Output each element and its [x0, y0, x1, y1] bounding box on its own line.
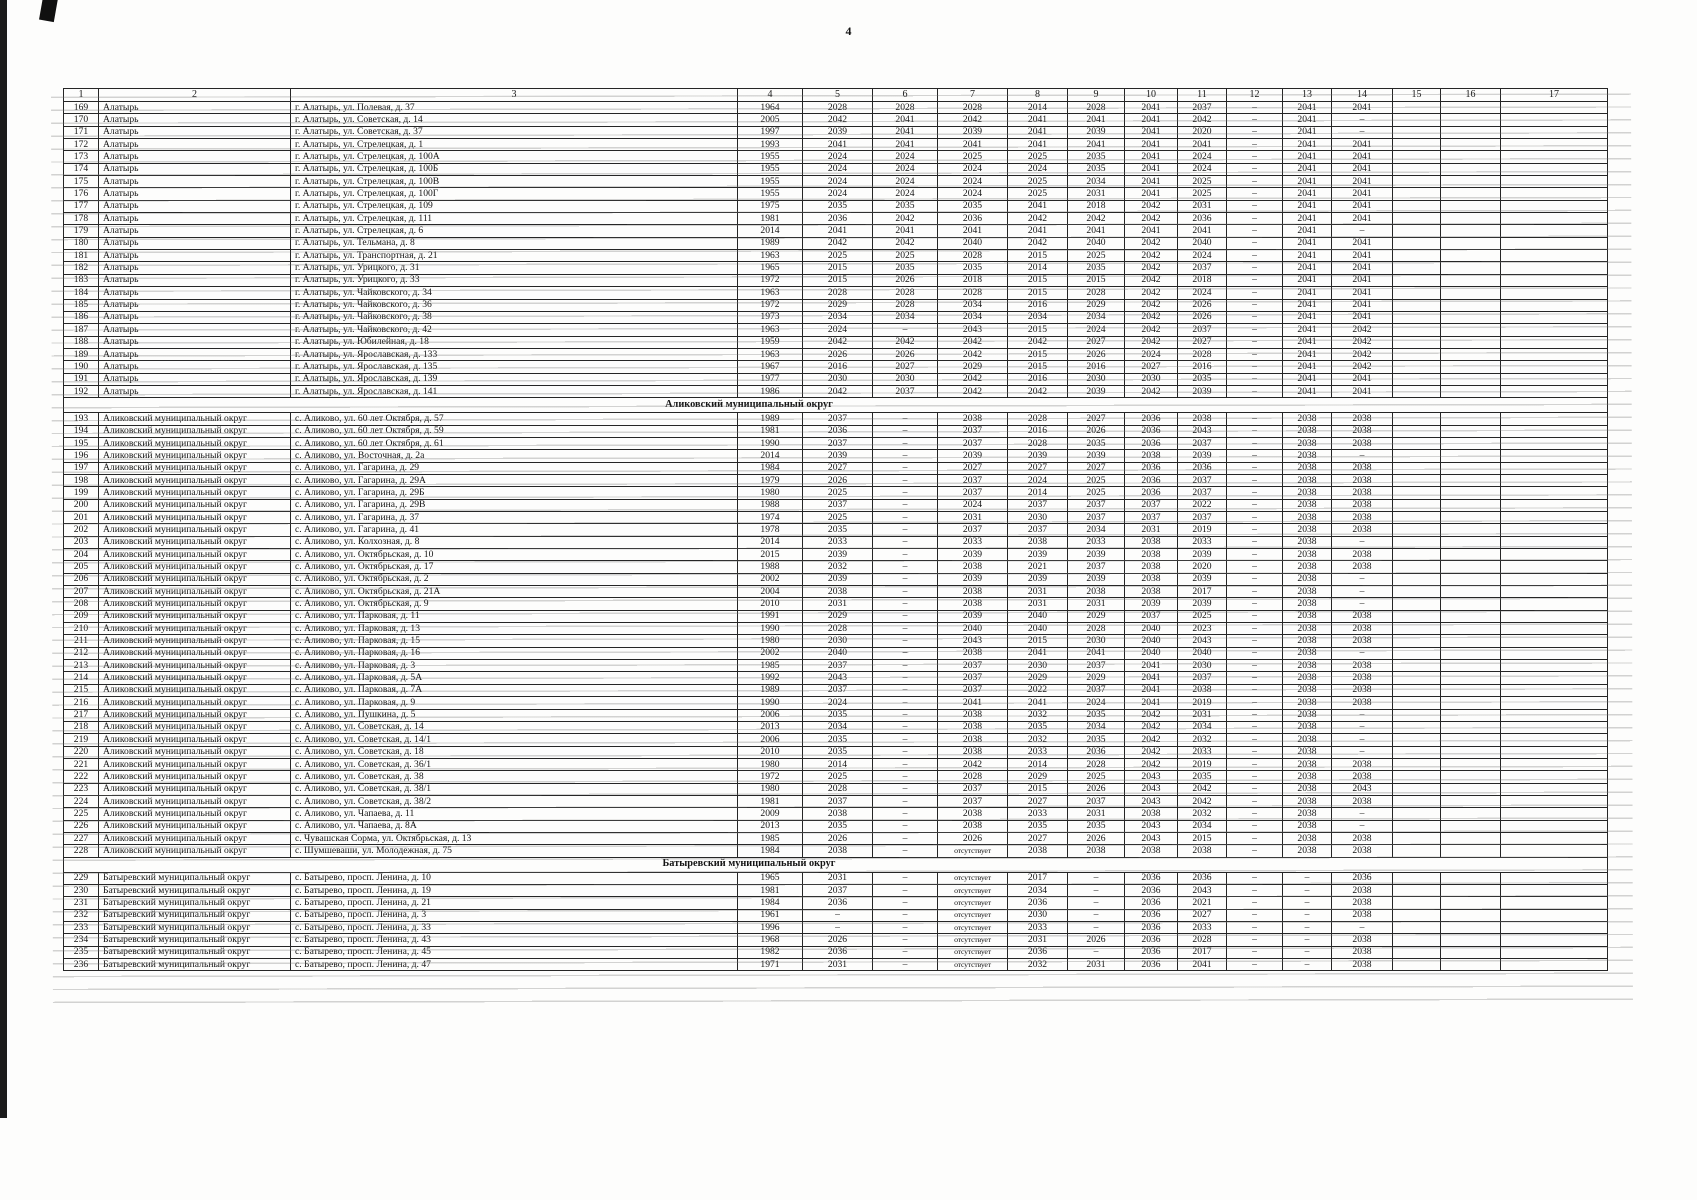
- table-row: 216Аликовский муниципальный округс. Алик…: [64, 697, 1608, 709]
- empty-cell: [1501, 348, 1608, 360]
- empty-cell: [1501, 126, 1608, 138]
- empty-cell: [1441, 872, 1501, 884]
- year-cell: 2027: [1008, 462, 1068, 474]
- empty-cell: [1393, 808, 1441, 820]
- municipality-cell: Алатырь: [99, 250, 291, 262]
- address-cell: г. Алатырь, ул. Ярославская, д. 133: [291, 348, 738, 360]
- table-row: 213Аликовский муниципальный округс. Алик…: [64, 660, 1608, 672]
- empty-cell: [1501, 139, 1608, 151]
- year-cell: 2038: [938, 586, 1008, 598]
- year-cell: 1986: [738, 385, 803, 397]
- year-cell: 2024: [873, 176, 938, 188]
- year-cell: 2042: [1332, 336, 1393, 348]
- year-cell: 2026: [1068, 348, 1125, 360]
- table-row: 224Аликовский муниципальный округс. Алик…: [64, 795, 1608, 807]
- year-cell: –: [1227, 437, 1283, 449]
- year-cell: 2041: [1332, 250, 1393, 262]
- municipality-cell: Аликовский муниципальный округ: [99, 610, 291, 622]
- year-cell: 1972: [738, 299, 803, 311]
- row-number-cell: 182: [64, 262, 99, 274]
- address-cell: с. Аликово, ул. Парковая, д. 13: [291, 623, 738, 635]
- year-cell: 2036: [938, 213, 1008, 225]
- year-cell: 2025: [1068, 250, 1125, 262]
- year-cell: 1990: [738, 697, 803, 709]
- municipality-cell: Аликовский муниципальный округ: [99, 721, 291, 733]
- address-cell: с. Аликово, ул. Гагарина, д. 29А: [291, 474, 738, 486]
- year-cell: 2013: [738, 820, 803, 832]
- empty-cell: [1441, 561, 1501, 573]
- table-row: 172Алатырьг. Алатырь, ул. Стрелецкая, д.…: [64, 139, 1608, 151]
- row-number-cell: 174: [64, 163, 99, 175]
- year-cell: 2032: [1178, 808, 1227, 820]
- year-cell: 2019: [1178, 758, 1227, 770]
- empty-cell: [1441, 139, 1501, 151]
- year-cell: 2038: [1332, 959, 1393, 971]
- year-cell: –: [873, 845, 938, 857]
- empty-cell: [1393, 524, 1441, 536]
- page-number: 4: [0, 24, 1697, 39]
- empty-cell: [1441, 610, 1501, 622]
- year-cell: 2027: [1008, 832, 1068, 844]
- year-cell: 2024: [938, 188, 1008, 200]
- year-cell: 2038: [1332, 474, 1393, 486]
- year-cell: –: [1283, 909, 1332, 921]
- empty-cell: [1441, 474, 1501, 486]
- year-cell: 2041: [1125, 660, 1178, 672]
- address-cell: с. Аликово, ул. Парковая, д. 9: [291, 697, 738, 709]
- year-cell: –: [1283, 934, 1332, 946]
- year-cell: 2043: [1178, 425, 1227, 437]
- year-cell: –: [1227, 139, 1283, 151]
- year-cell: 2038: [1125, 586, 1178, 598]
- year-cell: –: [1227, 946, 1283, 958]
- year-cell: –: [1332, 721, 1393, 733]
- year-cell: 2042: [803, 385, 873, 397]
- table-row: 185Алатырьг. Алатырь, ул. Чайковского, д…: [64, 299, 1608, 311]
- municipality-cell: Алатырь: [99, 385, 291, 397]
- year-cell: 2032: [1008, 959, 1068, 971]
- year-cell: 2031: [803, 872, 873, 884]
- year-cell: –: [1227, 586, 1283, 598]
- table-row: 227Аликовский муниципальный округс. Чува…: [64, 832, 1608, 844]
- year-cell: 2041: [1125, 672, 1178, 684]
- table-row: 236Батыревский муниципальный округс. Бат…: [64, 959, 1608, 971]
- year-cell: –: [873, 425, 938, 437]
- year-cell: 1955: [738, 188, 803, 200]
- column-header-16: 16: [1441, 89, 1501, 102]
- year-cell: 2042: [1125, 721, 1178, 733]
- empty-cell: [1501, 274, 1608, 286]
- year-cell: 2029: [803, 610, 873, 622]
- empty-cell: [1441, 536, 1501, 548]
- year-cell: 2041: [1283, 324, 1332, 336]
- year-cell: 1975: [738, 200, 803, 212]
- empty-cell: [1393, 462, 1441, 474]
- municipality-cell: Аликовский муниципальный округ: [99, 462, 291, 474]
- year-cell: 2038: [1283, 647, 1332, 659]
- municipality-cell: Аликовский муниципальный округ: [99, 832, 291, 844]
- year-cell: 2040: [1125, 623, 1178, 635]
- municipality-cell: Аликовский муниципальный округ: [99, 499, 291, 511]
- table-row: 184Алатырьг. Алатырь, ул. Чайковского, д…: [64, 287, 1608, 299]
- year-cell: отсутствует: [938, 845, 1008, 857]
- year-cell: 2033: [1008, 746, 1068, 758]
- row-number-cell: 169: [64, 102, 99, 114]
- empty-cell: [1393, 586, 1441, 598]
- year-cell: 2028: [873, 287, 938, 299]
- row-number-cell: 229: [64, 872, 99, 884]
- year-cell: 2024: [803, 163, 873, 175]
- row-number-cell: 194: [64, 425, 99, 437]
- year-cell: 2039: [1125, 598, 1178, 610]
- empty-cell: [1441, 934, 1501, 946]
- year-cell: –: [803, 909, 873, 921]
- year-cell: 1985: [738, 832, 803, 844]
- year-cell: 2010: [738, 598, 803, 610]
- year-cell: 2041: [1008, 647, 1068, 659]
- year-cell: 2036: [1125, 959, 1178, 971]
- year-cell: 2042: [1332, 361, 1393, 373]
- table-row: 182Алатырьг. Алатырь, ул. Урицкого, д. 3…: [64, 262, 1608, 274]
- year-cell: 2016: [803, 361, 873, 373]
- address-cell: с. Батырево, просп. Ленина, д. 21: [291, 897, 738, 909]
- empty-cell: [1441, 225, 1501, 237]
- year-cell: 2038: [1332, 561, 1393, 573]
- year-cell: –: [873, 462, 938, 474]
- year-cell: 2041: [938, 139, 1008, 151]
- year-cell: 2038: [1332, 946, 1393, 958]
- empty-cell: [1393, 287, 1441, 299]
- year-cell: 2037: [1178, 672, 1227, 684]
- empty-cell: [1441, 425, 1501, 437]
- year-cell: 2028: [938, 250, 1008, 262]
- year-cell: –: [873, 909, 938, 921]
- row-number-cell: 172: [64, 139, 99, 151]
- year-cell: 2037: [1068, 561, 1125, 573]
- column-header-17: 17: [1501, 89, 1608, 102]
- year-cell: –: [1227, 623, 1283, 635]
- year-cell: 2036: [1178, 872, 1227, 884]
- year-cell: 2015: [1008, 274, 1068, 286]
- year-cell: 1955: [738, 163, 803, 175]
- year-cell: 2038: [1125, 573, 1178, 585]
- year-cell: 1996: [738, 922, 803, 934]
- table-row: 178Алатырьг. Алатырь, ул. Стрелецкая, д.…: [64, 213, 1608, 225]
- year-cell: 2042: [1125, 237, 1178, 249]
- year-cell: –: [873, 946, 938, 958]
- year-cell: 2038: [1332, 499, 1393, 511]
- empty-cell: [1441, 623, 1501, 635]
- year-cell: –: [1227, 922, 1283, 934]
- year-cell: 2037: [938, 660, 1008, 672]
- row-number-cell: 225: [64, 808, 99, 820]
- empty-cell: [1393, 425, 1441, 437]
- year-cell: 2016: [1008, 299, 1068, 311]
- year-cell: –: [1068, 884, 1125, 896]
- empty-cell: [1501, 413, 1608, 425]
- year-cell: 2043: [938, 324, 1008, 336]
- address-cell: с. Аликово, ул. Советская, д. 38/1: [291, 783, 738, 795]
- year-cell: 2014: [738, 225, 803, 237]
- year-cell: 2042: [938, 758, 1008, 770]
- year-cell: 2042: [1008, 213, 1068, 225]
- year-cell: 2027: [938, 462, 1008, 474]
- year-cell: –: [873, 771, 938, 783]
- year-cell: 2041: [1283, 262, 1332, 274]
- empty-cell: [1441, 549, 1501, 561]
- year-cell: 2025: [1008, 188, 1068, 200]
- empty-cell: [1441, 709, 1501, 721]
- year-cell: 2030: [1068, 635, 1125, 647]
- table-row: 188Алатырьг. Алатырь, ул. Юбилейная, д. …: [64, 336, 1608, 348]
- year-cell: –: [873, 512, 938, 524]
- year-cell: 2042: [873, 336, 938, 348]
- year-cell: 2026: [803, 348, 873, 360]
- empty-cell: [1441, 783, 1501, 795]
- table-row: 196Аликовский муниципальный округс. Алик…: [64, 450, 1608, 462]
- year-cell: 2038: [938, 808, 1008, 820]
- year-cell: 2024: [803, 151, 873, 163]
- year-cell: –: [1227, 820, 1283, 832]
- table-row: 231Батыревский муниципальный округс. Бат…: [64, 897, 1608, 909]
- year-cell: 2035: [803, 734, 873, 746]
- table-row: 173Алатырьг. Алатырь, ул. Стрелецкая, д.…: [64, 151, 1608, 163]
- row-number-cell: 179: [64, 225, 99, 237]
- year-cell: 2035: [873, 262, 938, 274]
- municipality-cell: Алатырь: [99, 188, 291, 200]
- year-cell: 2038: [1332, 684, 1393, 696]
- year-cell: 2038: [1125, 536, 1178, 548]
- year-cell: 1984: [738, 897, 803, 909]
- year-cell: 2041: [1332, 373, 1393, 385]
- year-cell: –: [873, 884, 938, 896]
- year-cell: 2031: [938, 512, 1008, 524]
- address-cell: г. Алатырь, ул. Чайковского, д. 36: [291, 299, 738, 311]
- row-number-cell: 215: [64, 684, 99, 696]
- year-cell: 2035: [803, 820, 873, 832]
- empty-cell: [1501, 610, 1608, 622]
- year-cell: 2027: [803, 462, 873, 474]
- year-cell: –: [1332, 536, 1393, 548]
- address-cell: с. Аликово, ул. 60 лет Октября, д. 59: [291, 425, 738, 437]
- empty-cell: [1441, 462, 1501, 474]
- municipality-cell: Батыревский муниципальный округ: [99, 884, 291, 896]
- table-row: 211Аликовский муниципальный округс. Алик…: [64, 635, 1608, 647]
- year-cell: –: [873, 549, 938, 561]
- empty-cell: [1441, 647, 1501, 659]
- address-cell: г. Алатырь, ул. Стрелецкая, д. 109: [291, 200, 738, 212]
- year-cell: 2037: [1178, 102, 1227, 114]
- year-cell: 2037: [1178, 324, 1227, 336]
- year-cell: 2028: [1068, 102, 1125, 114]
- year-cell: –: [1227, 610, 1283, 622]
- year-cell: 2038: [938, 561, 1008, 573]
- year-cell: –: [1332, 808, 1393, 820]
- year-cell: 2038: [1332, 462, 1393, 474]
- year-cell: –: [1227, 536, 1283, 548]
- year-cell: 2021: [1178, 897, 1227, 909]
- address-cell: г. Алатырь, ул. Стрелецкая, д. 111: [291, 213, 738, 225]
- year-cell: –: [1227, 176, 1283, 188]
- municipality-cell: Алатырь: [99, 274, 291, 286]
- year-cell: 2039: [1178, 385, 1227, 397]
- empty-cell: [1393, 647, 1441, 659]
- year-cell: 2036: [1125, 462, 1178, 474]
- empty-cell: [1501, 163, 1608, 175]
- year-cell: 2038: [1283, 820, 1332, 832]
- empty-cell: [1441, 758, 1501, 770]
- year-cell: –: [1068, 909, 1125, 921]
- year-cell: 2025: [803, 250, 873, 262]
- table-row: 212Аликовский муниципальный округс. Алик…: [64, 647, 1608, 659]
- empty-cell: [1501, 324, 1608, 336]
- address-cell: с. Батырево, просп. Ленина, д. 10: [291, 872, 738, 884]
- year-cell: 2041: [803, 139, 873, 151]
- year-cell: –: [873, 820, 938, 832]
- year-cell: –: [1332, 450, 1393, 462]
- year-cell: 2037: [803, 437, 873, 449]
- empty-cell: [1441, 820, 1501, 832]
- empty-cell: [1501, 225, 1608, 237]
- year-cell: 2025: [873, 250, 938, 262]
- year-cell: отсутствует: [938, 872, 1008, 884]
- table-row: 222Аликовский муниципальный округс. Алик…: [64, 771, 1608, 783]
- address-cell: г. Алатырь, ул. Чайковского, д. 34: [291, 287, 738, 299]
- empty-cell: [1393, 311, 1441, 323]
- address-cell: с. Аликово, ул. Советская, д. 14: [291, 721, 738, 733]
- year-cell: 1963: [738, 287, 803, 299]
- year-cell: 1989: [738, 684, 803, 696]
- year-cell: 2037: [938, 795, 1008, 807]
- year-cell: 2041: [1068, 139, 1125, 151]
- year-cell: 2015: [1008, 250, 1068, 262]
- year-cell: –: [873, 808, 938, 820]
- year-cell: 1981: [738, 425, 803, 437]
- table-row: 226Аликовский муниципальный округс. Алик…: [64, 820, 1608, 832]
- year-cell: 1988: [738, 561, 803, 573]
- year-cell: –: [1227, 635, 1283, 647]
- municipality-cell: Аликовский муниципальный округ: [99, 845, 291, 857]
- table-row: 174Алатырьг. Алатырь, ул. Стрелецкая, д.…: [64, 163, 1608, 175]
- year-cell: 2042: [1178, 783, 1227, 795]
- year-cell: –: [1227, 672, 1283, 684]
- year-cell: 2037: [938, 783, 1008, 795]
- year-cell: 2025: [1068, 474, 1125, 486]
- municipality-cell: Аликовский муниципальный округ: [99, 758, 291, 770]
- year-cell: –: [873, 450, 938, 462]
- year-cell: 2038: [1283, 845, 1332, 857]
- municipality-cell: Алатырь: [99, 225, 291, 237]
- year-cell: –: [1227, 287, 1283, 299]
- year-cell: 2042: [1178, 114, 1227, 126]
- year-cell: 2043: [1178, 884, 1227, 896]
- table-row: 195Аликовский муниципальный округс. Алик…: [64, 437, 1608, 449]
- year-cell: –: [873, 697, 938, 709]
- row-number-cell: 201: [64, 512, 99, 524]
- year-cell: 2024: [1178, 163, 1227, 175]
- empty-cell: [1501, 684, 1608, 696]
- address-cell: г. Алатырь, ул. Чайковского, д. 42: [291, 324, 738, 336]
- address-cell: г. Алатырь, ул. Советская, д. 37: [291, 126, 738, 138]
- year-cell: 2023: [1178, 623, 1227, 635]
- municipality-cell: Алатырь: [99, 262, 291, 274]
- year-cell: 2041: [1283, 287, 1332, 299]
- year-cell: 2041: [1125, 697, 1178, 709]
- year-cell: 2041: [873, 126, 938, 138]
- empty-cell: [1441, 734, 1501, 746]
- empty-cell: [1441, 274, 1501, 286]
- address-cell: с. Батырево, просп. Ленина, д. 45: [291, 946, 738, 958]
- empty-cell: [1393, 561, 1441, 573]
- empty-cell: [1501, 934, 1608, 946]
- address-cell: с. Аликово, ул. Парковая, д. 16: [291, 647, 738, 659]
- year-cell: 2041: [1283, 385, 1332, 397]
- year-cell: 2029: [1068, 299, 1125, 311]
- year-cell: 2025: [803, 487, 873, 499]
- table-row: 215Аликовский муниципальный округс. Алик…: [64, 684, 1608, 696]
- year-cell: 2041: [1332, 311, 1393, 323]
- year-cell: 2037: [938, 487, 1008, 499]
- year-cell: 2038: [1008, 845, 1068, 857]
- year-cell: 2033: [1178, 746, 1227, 758]
- year-cell: 2038: [1283, 549, 1332, 561]
- empty-cell: [1393, 499, 1441, 511]
- year-cell: –: [1227, 413, 1283, 425]
- year-cell: 2024: [1008, 163, 1068, 175]
- column-header-5: 5: [803, 89, 873, 102]
- empty-cell: [1501, 872, 1608, 884]
- municipality-cell: Алатырь: [99, 311, 291, 323]
- address-cell: с. Аликово, ул. Парковая, д. 7А: [291, 684, 738, 696]
- year-cell: –: [1332, 922, 1393, 934]
- year-cell: –: [1283, 946, 1332, 958]
- year-cell: 2043: [1125, 771, 1178, 783]
- year-cell: 2041: [1283, 114, 1332, 126]
- year-cell: –: [873, 573, 938, 585]
- address-cell: с. Аликово, ул. Октябрьская, д. 17: [291, 561, 738, 573]
- address-cell: с. Аликово, ул. Чапаева, д. 11: [291, 808, 738, 820]
- year-cell: 2042: [1125, 287, 1178, 299]
- empty-cell: [1441, 487, 1501, 499]
- year-cell: 2041: [1178, 139, 1227, 151]
- year-cell: 2029: [938, 361, 1008, 373]
- municipality-cell: Алатырь: [99, 299, 291, 311]
- row-number-cell: 189: [64, 348, 99, 360]
- year-cell: 2026: [873, 274, 938, 286]
- year-cell: 2038: [1332, 425, 1393, 437]
- year-cell: 2038: [1068, 586, 1125, 598]
- year-cell: 2038: [803, 808, 873, 820]
- year-cell: 2038: [1283, 425, 1332, 437]
- year-cell: 2036: [1125, 425, 1178, 437]
- year-cell: 2041: [1008, 697, 1068, 709]
- row-number-cell: 203: [64, 536, 99, 548]
- empty-cell: [1501, 660, 1608, 672]
- year-cell: 2037: [803, 413, 873, 425]
- year-cell: 2036: [1125, 934, 1178, 946]
- year-cell: 2042: [1125, 250, 1178, 262]
- year-cell: –: [1227, 324, 1283, 336]
- year-cell: 2016: [1068, 361, 1125, 373]
- empty-cell: [1441, 348, 1501, 360]
- year-cell: 2038: [1332, 512, 1393, 524]
- empty-cell: [1501, 287, 1608, 299]
- year-cell: 2038: [1283, 487, 1332, 499]
- year-cell: –: [873, 536, 938, 548]
- year-cell: 2036: [803, 425, 873, 437]
- year-cell: 2019: [1178, 697, 1227, 709]
- empty-cell: [1393, 746, 1441, 758]
